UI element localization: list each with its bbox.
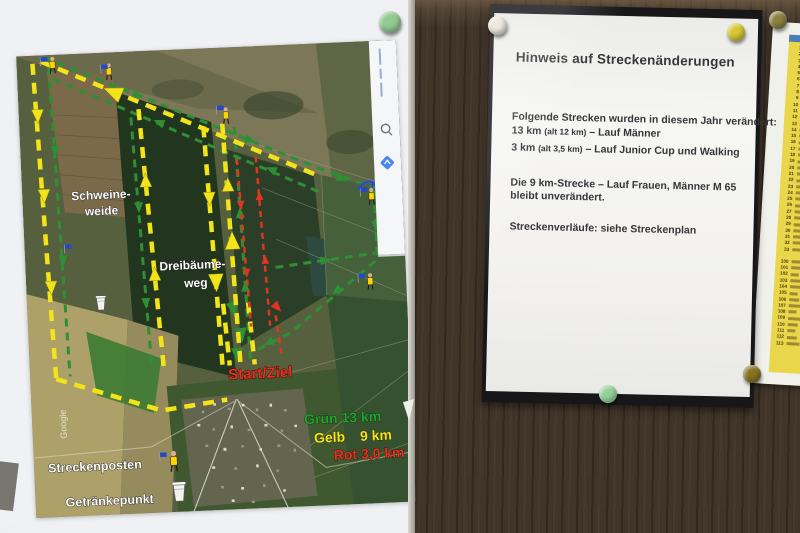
illegible-name — [792, 235, 800, 239]
illegible-name — [788, 304, 800, 308]
legend-gelb: Gelb — [314, 429, 346, 446]
illegible-name — [789, 298, 799, 302]
illegible-name — [796, 179, 800, 183]
notice-line-9km-b: bleibt unverändert. — [510, 189, 605, 203]
illegible-name — [795, 198, 800, 202]
illegible-name — [793, 223, 800, 227]
notice-title: Hinweis auf Streckenänderungen — [493, 49, 757, 70]
illegible-name — [787, 329, 795, 332]
streckenplan-poster: Schweine- weide Dreibäume- weg Streckenp… — [0, 0, 408, 533]
notice-line-13km: 13 km (alt 12 km) – Lauf Männer — [512, 124, 661, 139]
push-pin-green — [379, 11, 401, 33]
notice-sheet: Hinweis auf Streckenänderungen Folgende … — [486, 13, 759, 397]
label-dreibaeumeweg-2: weg — [183, 275, 208, 290]
push-pin-olive-top — [769, 11, 787, 29]
start-list-row: 33 — [777, 246, 800, 256]
start-list-rows-2: 1001011021031041051061071081091101111121… — [770, 258, 800, 350]
notice-line-3km: 3 km (alt 3,5 km) – Lauf Junior Cup und … — [511, 141, 740, 158]
illegible-name — [796, 185, 800, 189]
legend-gelb-value: 9 km — [360, 426, 393, 443]
photo-of-notice-board: Schweine- weide Dreibäume- weg Streckenp… — [0, 0, 800, 533]
illegible-name — [796, 173, 800, 176]
illegible-name — [786, 342, 799, 346]
push-pin-green-bottom — [599, 385, 617, 403]
course-map: Schweine- weide Dreibäume- weg Streckenp… — [16, 40, 416, 518]
label-dreibaeumeweg: Dreibäume- — [159, 257, 226, 274]
push-pin-yellow — [727, 23, 745, 41]
illegible-name — [790, 279, 800, 283]
legend-rot: Rot 3,0 km — [333, 444, 404, 463]
push-pin-olive-bottom — [743, 365, 761, 383]
course-map-print: Schweine- weide Dreibäume- weg Streckenp… — [16, 40, 416, 518]
label-schweineweide: Schweine- — [71, 187, 131, 204]
illegible-name — [790, 273, 798, 276]
paper-edge-shadow — [0, 461, 19, 511]
illegible-name — [794, 204, 800, 208]
notice-footer: Streckenverläufe: siehe Streckenplan — [509, 220, 696, 236]
illegible-name — [792, 242, 800, 246]
label-schweineweide-2: weide — [84, 203, 119, 218]
google-watermark: Google — [58, 410, 69, 439]
illegible-name — [792, 248, 800, 251]
legend-gruen: Grün 13 km — [304, 408, 382, 427]
illegible-name — [791, 266, 800, 270]
label-start-ziel: Start/Ziel — [228, 364, 293, 384]
illegible-name — [795, 191, 800, 194]
illegible-name — [787, 323, 797, 327]
illegible-name — [794, 210, 800, 213]
push-pin-white — [488, 16, 507, 35]
illegible-name — [789, 285, 800, 289]
illegible-name — [788, 310, 796, 313]
start-list-row: 113 — [771, 340, 800, 350]
notice-sheet-sleeve: Hinweis auf Streckenänderungen Folgende … — [482, 4, 763, 408]
illegible-name — [793, 229, 800, 233]
illegible-name — [797, 166, 800, 170]
illegible-name — [791, 260, 800, 264]
illegible-name — [794, 217, 800, 221]
village-area — [181, 388, 318, 508]
board-frame-edge — [408, 0, 415, 533]
illegible-name — [786, 336, 796, 340]
illegible-name — [787, 317, 800, 321]
illegible-name — [789, 292, 797, 295]
